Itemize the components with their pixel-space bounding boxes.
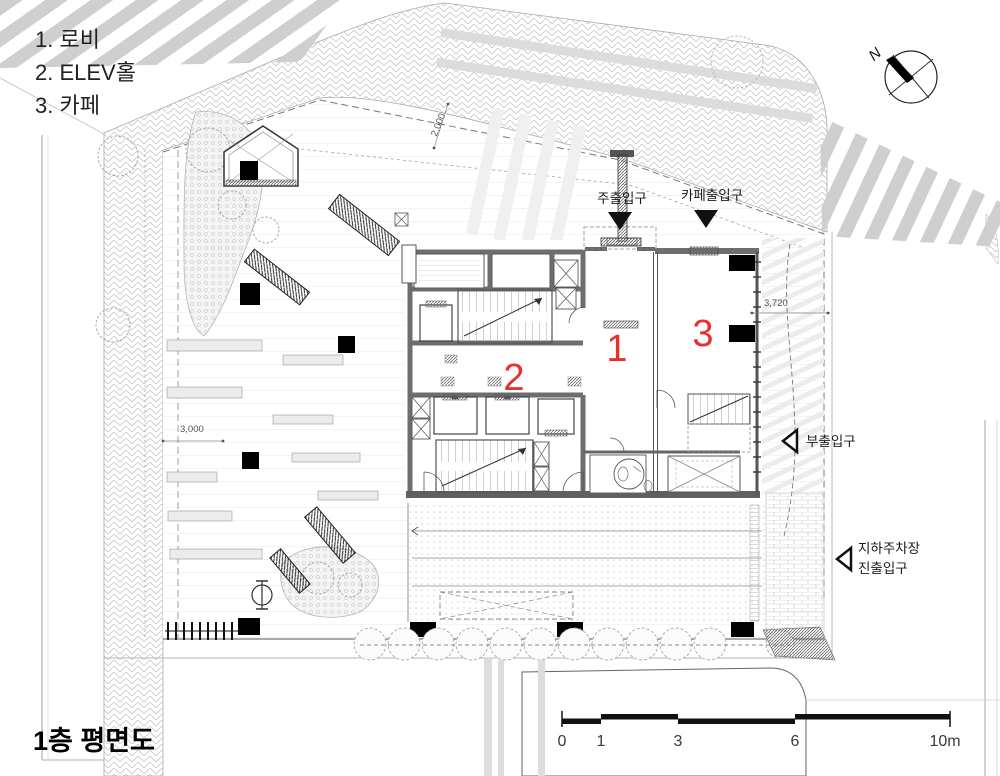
floor-plan-page: 1 2 3 주출입구 카페출입구 부출입구 지하주차장 진출입구 2,000 3… bbox=[0, 0, 1000, 776]
room-number-hall: 2 bbox=[503, 357, 524, 399]
room-number-cafe: 3 bbox=[692, 313, 713, 355]
scale-tick-3: 3 bbox=[674, 733, 683, 750]
parking-entrance-label-1: 지하주차장 bbox=[858, 541, 920, 556]
driveway bbox=[408, 503, 768, 622]
stair-lower bbox=[436, 440, 533, 492]
scale-tick-10m: 10m bbox=[929, 733, 960, 750]
scale-tick-0: 0 bbox=[558, 733, 567, 750]
main-entrance-label: 주출입구 bbox=[597, 191, 647, 206]
side-entrance-label: 부출입구 bbox=[806, 434, 856, 449]
dim-plaza: 3,000 bbox=[180, 424, 204, 435]
accessible-toilet bbox=[590, 455, 652, 493]
column bbox=[729, 325, 755, 342]
column bbox=[729, 255, 755, 271]
dim-ramp: 3,720 bbox=[764, 298, 788, 309]
stair-upper bbox=[458, 290, 552, 343]
shaft-box bbox=[395, 213, 408, 226]
north-label: N bbox=[865, 44, 884, 64]
grating bbox=[750, 505, 759, 621]
arrow-left-icon bbox=[837, 548, 851, 570]
legend-item-cafe: 3. 카페 bbox=[35, 93, 100, 118]
crosswalk-top-right bbox=[820, 116, 1000, 247]
parking-entrance-label-2: 진출입구 bbox=[858, 561, 908, 576]
north-compass: N bbox=[865, 44, 937, 103]
cafe-entrance-label: 카페출입구 bbox=[681, 188, 743, 203]
cafe-entrance-door bbox=[690, 247, 718, 255]
floor-plan-drawing: 1 2 3 주출입구 카페출입구 부출입구 지하주차장 진출입구 2,000 3… bbox=[0, 0, 1000, 776]
drawing-title: 1층 평면도 bbox=[33, 726, 155, 756]
legend-item-lobby: 1. 로비 bbox=[35, 27, 100, 52]
legend-item-elev-hall: 2. ELEV홀 bbox=[35, 60, 136, 85]
room-number-lobby: 1 bbox=[606, 328, 627, 370]
brick-paving bbox=[766, 493, 824, 643]
scale-tick-6: 6 bbox=[791, 733, 800, 750]
storage-room bbox=[668, 456, 740, 492]
scale-tick-1: 1 bbox=[597, 733, 606, 750]
